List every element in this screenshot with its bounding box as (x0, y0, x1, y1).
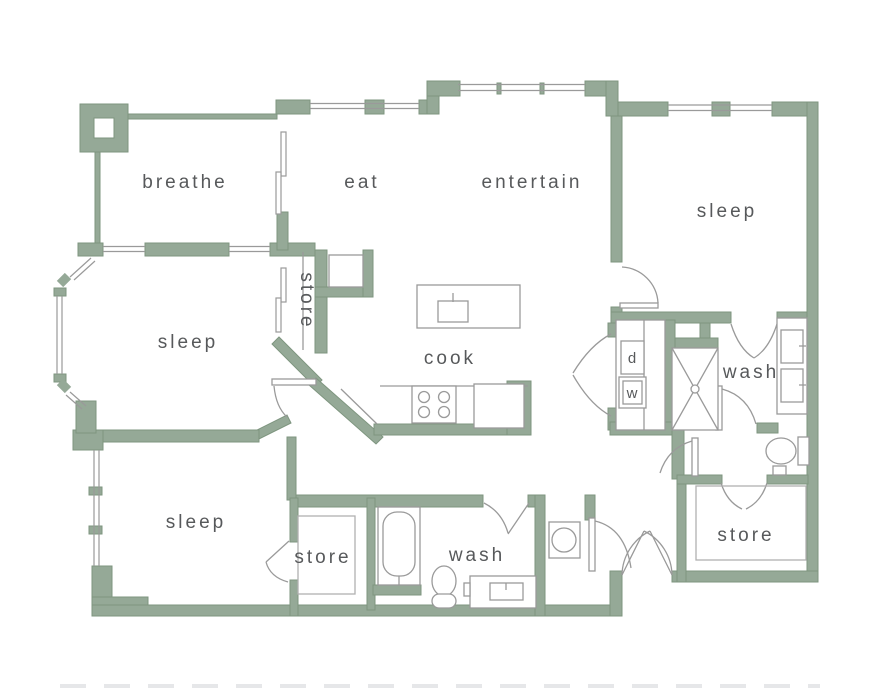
label-bedroom-left: sleep (158, 332, 218, 353)
balcony-slider-panel (276, 172, 281, 214)
label-closet-bottom: store (294, 547, 351, 568)
label-dining: eat (344, 172, 379, 193)
pantry-slider-panel (276, 298, 281, 332)
balcony-slider-panel (281, 132, 286, 176)
label-bedroom-bottom: sleep (166, 512, 226, 533)
label-balcony: breathe (142, 172, 227, 193)
floor-plan-drawing: breathe eat entertain sleep sleep store … (0, 0, 882, 690)
burner (439, 392, 450, 403)
label-washer: w (626, 385, 638, 402)
range (412, 386, 456, 423)
washing-machine-drum (552, 528, 576, 552)
label-bath-bottom: wash (448, 545, 505, 566)
balcony-column-core (94, 118, 114, 138)
label-bedroom-top-right: sleep (697, 201, 757, 222)
bathtub-basin (383, 512, 415, 576)
bay-window-top (70, 258, 95, 280)
toilet-tank (798, 437, 809, 465)
burner (419, 392, 430, 403)
island-sink (438, 301, 468, 322)
bay-window-side (57, 296, 62, 374)
door-leaf (620, 303, 658, 308)
burner (439, 407, 450, 418)
shower-drain (691, 385, 699, 393)
burner (419, 407, 430, 418)
door-leaf (692, 438, 698, 476)
label-kitchen: cook (424, 348, 476, 369)
floor-plan: breathe eat entertain sleep sleep store … (0, 0, 882, 690)
refrigerator (474, 384, 524, 428)
vanity-tab (464, 583, 470, 596)
laundry-closet (616, 320, 665, 430)
window-entertain (458, 85, 585, 91)
window-sleep-bottom (94, 450, 99, 566)
toilet-flush (773, 466, 786, 475)
label-dryer: d (628, 350, 636, 367)
door-leaf (272, 379, 316, 385)
label-storage-bottom-right: store (717, 525, 774, 546)
toilet-base (432, 594, 456, 608)
door-leaf (589, 518, 595, 571)
store-right-shelf (696, 486, 806, 560)
toilet-master (766, 438, 796, 464)
label-closet-pantry: store (296, 272, 317, 329)
toilet-bottom (432, 566, 456, 596)
label-living: entertain (482, 172, 583, 193)
coat-closet (329, 255, 363, 287)
pantry-slider-panel (281, 268, 286, 302)
label-bath-master: wash (722, 362, 779, 383)
cropped-caption-line (60, 684, 820, 688)
